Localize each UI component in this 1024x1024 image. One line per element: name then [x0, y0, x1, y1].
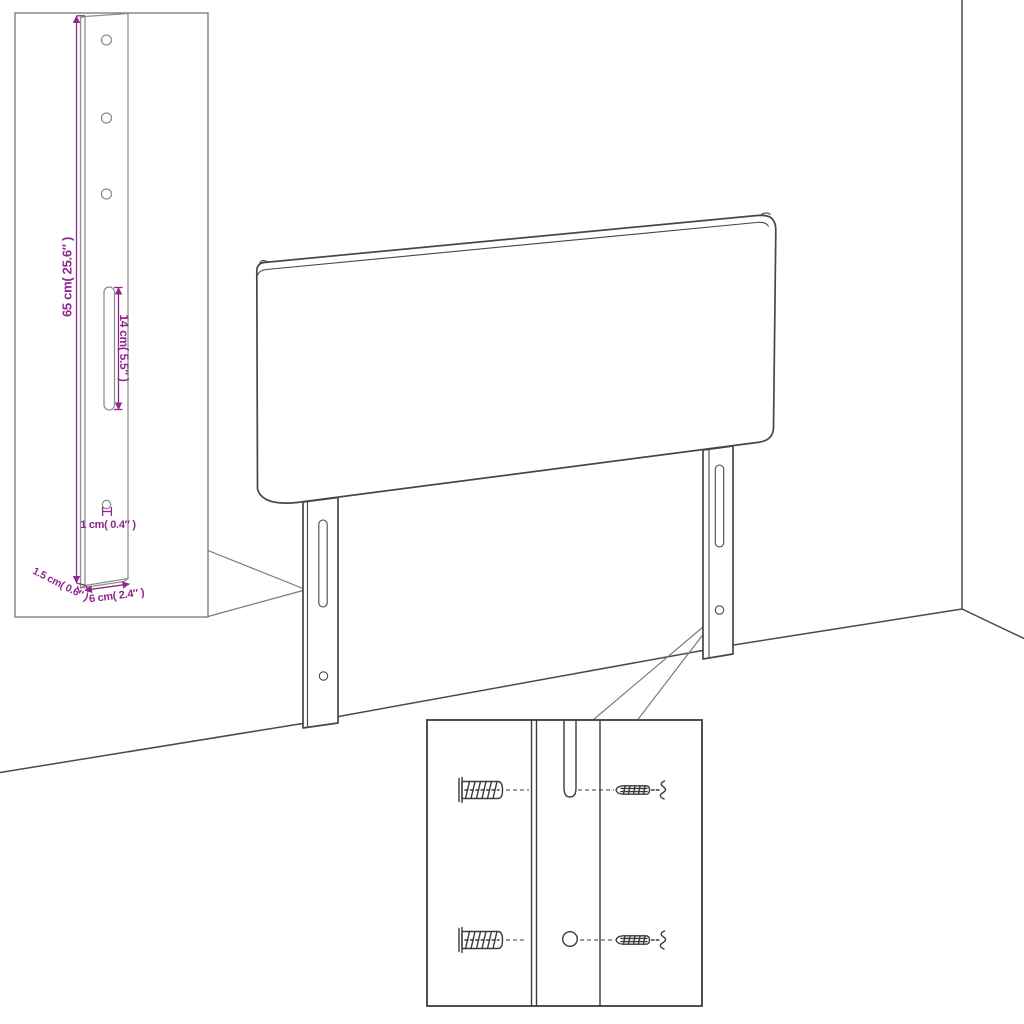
- right-leg-outline: [703, 446, 733, 659]
- height-dimension-label: 65 cm( 25.6″ ): [60, 237, 75, 317]
- hardware-detail-callout: [427, 720, 702, 1006]
- left-mounting-leg: [303, 498, 338, 729]
- leader-line-top-callout-b: [208, 591, 303, 617]
- callout-leaders: [208, 551, 720, 721]
- leader-line-top-callout-a: [208, 551, 303, 589]
- headboard-assembly-diagram: 65 cm( 25.6″ ) 14 cm( 5.5″ ) 1 cm( 0.4″ …: [0, 0, 1024, 1024]
- headboard-outline: [257, 215, 776, 503]
- headboard-panel: [257, 213, 776, 503]
- floor-edge-near-corner: [734, 609, 963, 645]
- floor-edge-right: [962, 609, 1024, 639]
- diagram-page: 65 cm( 25.6″ ) 14 cm( 5.5″ ) 1 cm( 0.4″ …: [0, 0, 1024, 1024]
- floor-edge-left: [0, 724, 303, 773]
- right-mounting-leg: [703, 446, 733, 659]
- leg-detail-callout: 65 cm( 25.6″ ) 14 cm( 5.5″ ) 1 cm( 0.4″ …: [15, 13, 208, 617]
- hole-dimension-label: 1 cm( 0.4″ ): [80, 519, 136, 531]
- slot-dimension-label: 14 cm( 5.5″ ): [117, 314, 131, 382]
- left-leg-outline: [303, 498, 338, 729]
